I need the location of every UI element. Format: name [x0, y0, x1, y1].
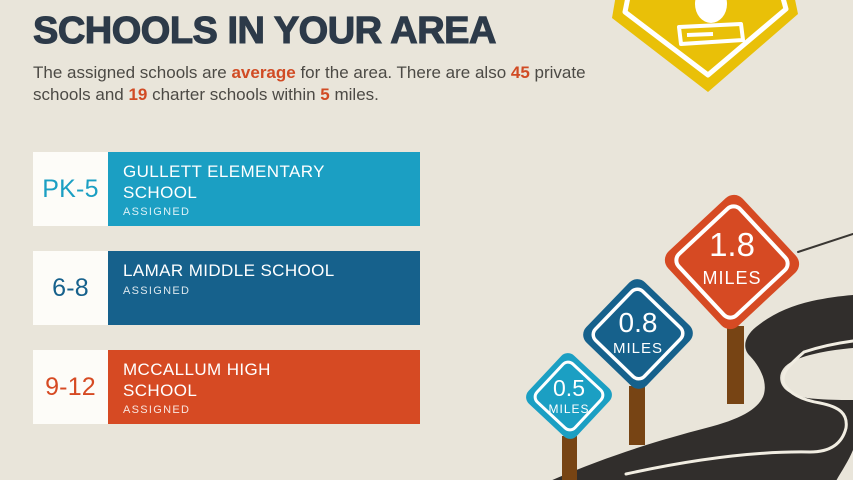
school-list: PK-5 GULLETT ELEMENTARY SCHOOL ASSIGNED … — [33, 152, 420, 449]
school-card-middle: 6-8 LAMAR MIDDLE SCHOOL ASSIGNED — [33, 251, 420, 325]
highlight-average: average — [231, 63, 295, 82]
horizon-line — [798, 234, 853, 252]
intro-segment: The assigned schools are — [33, 63, 231, 82]
distance-sign-near: 0.5 MILES — [522, 349, 615, 442]
school-card-body: LAMAR MIDDLE SCHOOL ASSIGNED — [108, 251, 420, 325]
sign-post — [727, 326, 744, 404]
assigned-label: ASSIGNED — [123, 404, 420, 416]
intro-segment: charter schools within — [147, 85, 320, 104]
school-card-body: GULLETT ELEMENTARY SCHOOL ASSIGNED — [108, 152, 420, 226]
grade-badge: 9-12 — [33, 350, 108, 424]
intro-text: The assigned schools are average for the… — [33, 62, 593, 107]
school-name: GULLETT ELEMENTARY SCHOOL — [123, 162, 358, 203]
infographic-canvas: 0.5 MILES 0.8 MILES 1.8 MILES — [0, 0, 853, 480]
school-card-high: 9-12 MCCALLUM HIGH SCHOOL ASSIGNED — [33, 350, 420, 424]
sign-distance-value: 0.5 — [553, 375, 585, 401]
page-title: SCHOOLS IN YOUR AREA — [33, 10, 613, 54]
grade-badge: PK-5 — [33, 152, 108, 226]
school-card-body: MCCALLUM HIGH SCHOOL ASSIGNED — [108, 350, 420, 424]
intro-segment: miles. — [330, 85, 379, 104]
highlight-private-count: 45 — [511, 63, 530, 82]
sign-unit-label: MILES — [702, 268, 761, 288]
sign-unit-label: MILES — [548, 402, 589, 416]
sign-post — [562, 436, 577, 480]
assigned-label: ASSIGNED — [123, 206, 420, 218]
assigned-label: ASSIGNED — [123, 285, 420, 297]
school-name: MCCALLUM HIGH SCHOOL — [123, 360, 293, 401]
school-name: LAMAR MIDDLE SCHOOL — [123, 261, 393, 282]
highlight-charter-count: 19 — [128, 85, 147, 104]
book-page-line — [687, 34, 713, 35]
distance-sign-mid: 0.8 MILES — [579, 275, 698, 394]
sign-unit-label: MILES — [613, 340, 663, 357]
header: SCHOOLS IN YOUR AREA The assigned school… — [33, 10, 613, 107]
grade-badge: 6-8 — [33, 251, 108, 325]
highlight-miles: 5 — [320, 85, 329, 104]
school-card-elementary: PK-5 GULLETT ELEMENTARY SCHOOL ASSIGNED — [33, 152, 420, 226]
school-zone-sign — [612, 0, 798, 92]
intro-segment: for the area. There are also — [296, 63, 511, 82]
sign-distance-value: 0.8 — [619, 307, 658, 338]
sign-distance-value: 1.8 — [709, 226, 755, 263]
sign-post — [629, 386, 645, 445]
